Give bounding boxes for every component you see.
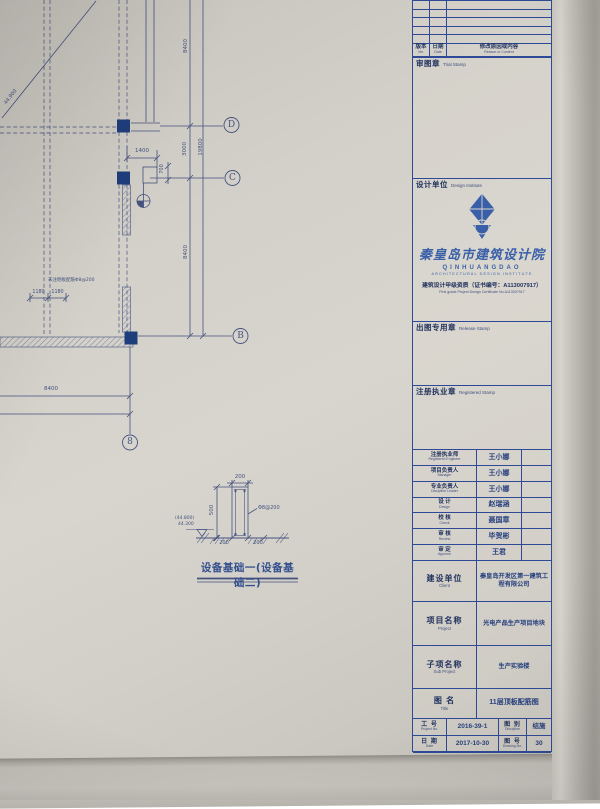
revision-empty-rows — [413, 1, 551, 44]
project-row: 项目名称Project 光电产品生产项目地块 — [413, 602, 551, 646]
dim-1180-a: 1180 — [29, 290, 48, 295]
detail-elev-bottom: 44.300 — [178, 522, 194, 527]
dim-8400-top: 8400 — [183, 32, 189, 60]
grid-bubble-8: 8 — [123, 437, 138, 447]
registered-stamp-box: 注册执业章Registered Stamp — [413, 386, 551, 450]
detail-dim-left: 200 — [215, 540, 233, 546]
title-block: 版本Ver. 日期Date 修改原因或内容Reason or Content 审… — [412, 0, 552, 752]
meta-row-date: 日 期Date 2017-10-30 图 号Drawing No. 30 — [413, 736, 551, 753]
drawing-photo: 44.900 8400 1400 3000 19800 700 8400 未注明… — [0, 0, 600, 800]
revision-header-row: 版本Ver. 日期Date 修改原因或内容Reason or Content — [413, 44, 551, 58]
detail-dim-right: 200 — [249, 540, 267, 546]
dim-1400: 1400 — [127, 148, 157, 154]
dim-8400-bottom: 8400 — [35, 386, 67, 392]
detail-caption: 设备基础一(设备基础二) — [196, 560, 299, 590]
company-name-en: QINHUANGDAO — [443, 265, 522, 271]
institute-logo — [465, 192, 499, 240]
detail-rebar-label: Φ8@200 — [258, 505, 280, 511]
signer-row: 项目负责人Manager王小娜 — [413, 466, 551, 482]
meta-row-project-no: 工 号Project No. 2016-39-1 图 别Discipline 结… — [413, 719, 551, 736]
company-subtitle-en: ARCHITECTURAL DESIGN INSTITUTE — [432, 272, 533, 276]
photo-right-edge — [552, 0, 600, 800]
trial-stamp-box: 审图章Trial Stamp — [413, 58, 551, 179]
dim-1180-b: 1180 — [48, 290, 67, 295]
signer-row: 审 定Approve王君 — [413, 545, 551, 561]
detail-dim-height: 500 — [209, 496, 215, 524]
detail-elev-top: (44.800) — [175, 516, 194, 521]
signer-row: 校 核Check聂国章 — [413, 513, 551, 529]
signer-row: 注册执业师Registered Engineer王小娜 — [413, 450, 551, 466]
grid-bubble-b: B — [233, 331, 248, 341]
certificate-cn: 建筑设计甲级资质（证书编号：A113007917） — [422, 280, 542, 289]
sheet-bottom-edge — [0, 753, 600, 808]
subproject-row: 子项名称Sub Project 生产实验楼 — [413, 646, 551, 689]
client-row: 建设单位Client 秦皇岛开发区第一建筑工程有限公司 — [413, 561, 551, 602]
signers-table: 注册执业师Registered Engineer王小娜 项目负责人Manager… — [413, 450, 551, 561]
detail-dim-top: 200 — [230, 474, 250, 480]
signer-row: 专业负责人Discipline Leader王小娜 — [413, 482, 551, 498]
signer-row: 设 计Design赵瑞涵 — [413, 498, 551, 514]
dim-19800: 19800 — [198, 133, 204, 161]
dim-700: 700 — [159, 155, 165, 183]
grid-bubble-c: C — [225, 173, 240, 183]
sheet-title-row: 图 名Title 11层顶板配筋图 — [413, 689, 551, 719]
grid-bubble-d: D — [224, 120, 239, 130]
signer-row: 审 核Review毕贺彬 — [413, 529, 551, 545]
release-stamp-box: 出图专用章Release Stamp — [413, 322, 551, 386]
slab-note: 未注明板配筋Φ8@200 — [48, 277, 95, 283]
certificate-en: First grade Project Design Certificate N… — [439, 290, 524, 294]
company-calligraphy: 秦皇岛市建筑设计院 — [419, 244, 545, 263]
design-institute-box: 设计单位Design Institute 秦皇岛市建筑设计院 QINHUANGD… — [413, 179, 551, 322]
dim-8400-mid: 8400 — [183, 238, 189, 266]
dim-3000: 3000 — [182, 135, 188, 163]
